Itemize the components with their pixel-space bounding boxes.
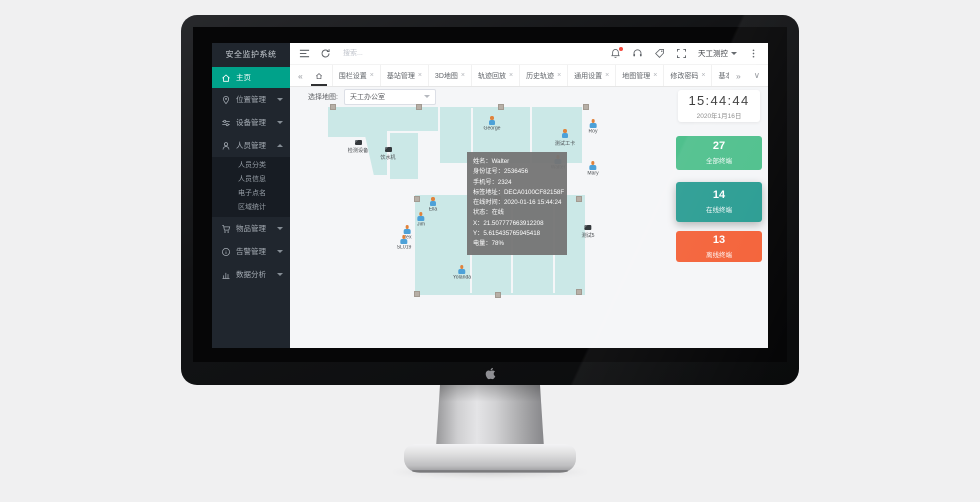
base-station-anchor [330, 104, 336, 110]
person-marker[interactable]: Jim [416, 212, 425, 228]
person-body-icon [590, 123, 597, 128]
notification-dot [619, 47, 623, 51]
tooltip-row: 标签地址DECA0100CF82158F [473, 188, 561, 198]
sidebar-item-label: 物品管理 [236, 223, 266, 234]
tab-label: 修改密码 [670, 71, 698, 81]
tooltip-value: 在线 [492, 209, 504, 216]
sidebar-item-cart[interactable]: 物品管理 [212, 217, 290, 240]
tooltip-row: X21.507777663912208 [473, 219, 561, 229]
sidebar-item-alarm[interactable]: 告警管理 [212, 240, 290, 263]
cart-icon [221, 224, 231, 234]
close-icon[interactable]: × [605, 72, 609, 79]
close-icon[interactable]: × [701, 72, 705, 79]
sidebar-item-chart[interactable]: 数据分析 [212, 263, 290, 286]
sidebar-subitem[interactable]: 人员信息 [212, 173, 290, 187]
monitor-frame: 安全监护系统 主页位置管理设备管理人员管理人员分类人员信息电子点名区域统计物品管… [181, 15, 799, 385]
tooltip-value: 5.615435765945418 [483, 230, 540, 237]
close-icon[interactable]: × [557, 72, 561, 79]
person-label: SL019 [397, 245, 412, 250]
desktop-background: 安全监护系统 主页位置管理设备管理人员管理人员分类人员信息电子点名区域统计物品管… [0, 0, 980, 502]
sidebar-item-label: 设备管理 [236, 117, 266, 128]
tab-label: 历史轨迹 [526, 71, 554, 81]
tooltip-label: 电量 [473, 240, 492, 247]
person-head-icon [419, 212, 423, 216]
fullscreen-icon[interactable] [676, 48, 687, 59]
sidebar: 安全监护系统 主页位置管理设备管理人员管理人员分类人员信息电子点名区域统计物品管… [212, 43, 290, 348]
item-marker[interactable]: 测试5 [580, 225, 595, 240]
tab-label: 通用设置 [574, 71, 602, 81]
monitor-chin [181, 362, 799, 385]
close-icon[interactable]: × [370, 72, 374, 79]
tooltip-value: 2536456 [504, 168, 528, 175]
person-head-icon [431, 197, 435, 201]
sidebar-item-label: 主页 [236, 72, 251, 83]
chevron-up-icon [277, 144, 283, 147]
person-label: Ella [429, 207, 438, 212]
tooltip-row: Y5.615435765945418 [473, 229, 561, 239]
sidebar-item-label: 位置管理 [236, 94, 266, 105]
tooltip-label: Y [473, 230, 483, 237]
person-marker[interactable]: 测试工卡 [553, 129, 577, 148]
refresh-icon[interactable] [320, 48, 331, 59]
clock-card: 15:44:44 2020年1月16日 [678, 90, 760, 122]
item-marker[interactable]: 检测设备 [346, 140, 370, 155]
tab-label: 基本资料 [718, 71, 729, 81]
chart-icon [221, 270, 231, 280]
sidebar-menu: 主页位置管理设备管理人员管理人员分类人员信息电子点名区域统计物品管理告警管理数据… [212, 67, 290, 286]
screen: 安全监护系统 主页位置管理设备管理人员管理人员分类人员信息电子点名区域统计物品管… [193, 27, 787, 362]
map-select-label: 选择地图: [308, 92, 338, 102]
notification-bell-icon[interactable] [610, 48, 621, 59]
close-icon[interactable]: × [461, 72, 465, 79]
person-body-icon [401, 239, 408, 244]
tooltip-label: 手机号 [473, 179, 498, 186]
alarm-icon [221, 247, 231, 257]
base-station-anchor [576, 289, 582, 295]
map-select-dropdown[interactable]: 天工办公室 [344, 89, 436, 105]
tab-item[interactable]: 围栏设置× [333, 65, 381, 86]
tab-item[interactable]: 地图管理× [616, 65, 664, 86]
home-icon [221, 73, 231, 83]
clock-time: 15:44:44 [688, 93, 749, 108]
person-marker[interactable]: Roy [588, 119, 599, 135]
user-menu[interactable]: 天工测控 [698, 48, 737, 59]
tooltip-row: 状态在线 [473, 208, 561, 218]
person-marker[interactable]: Yolanda [451, 265, 472, 281]
item-label: 检测设备 [348, 146, 368, 154]
person-marker[interactable]: SL019 [395, 235, 412, 251]
monitor-stand-base [404, 444, 576, 473]
home-icon [315, 72, 323, 80]
apple-logo-icon [485, 367, 496, 380]
tooltip-label: 姓名 [473, 158, 492, 165]
location-icon [221, 95, 231, 105]
tab-label: 围栏设置 [339, 71, 367, 81]
tooltip-row: 电量78% [473, 239, 561, 249]
tab-home[interactable] [306, 65, 333, 86]
sidebar-item-label: 数据分析 [236, 269, 266, 280]
chevron-down-icon [424, 95, 430, 98]
tab-item[interactable]: 轨迹回放× [472, 65, 520, 86]
scroll-tabs-left-icon[interactable]: « [295, 71, 306, 81]
tooltip-label: 标签地址 [473, 189, 504, 196]
stat-label: 全部终端 [706, 155, 732, 165]
person-marker[interactable]: George [482, 116, 502, 132]
tab-item[interactable]: 历史轨迹× [520, 65, 568, 86]
sidebar-submenu: 人员分类人员信息电子点名区域统计 [212, 157, 290, 217]
person-label: Yolanda [453, 275, 471, 280]
map-select-row: 选择地图: 天工办公室 [308, 89, 436, 104]
chevron-down-icon [277, 227, 283, 230]
item-icon [585, 225, 592, 230]
tabs-container: 围栏设置×基站管理×3D地图×轨迹回放×历史轨迹×通用设置×地图管理×修改密码×… [333, 65, 729, 86]
tooltip-row: 姓名Walter [473, 157, 561, 167]
person-body-icon [489, 120, 496, 125]
item-icon [354, 140, 361, 145]
tab-label: 轨迹回放 [478, 71, 506, 81]
stats-panel: 15:44:44 2020年1月16日 27全部终端14在线终端13离线终端 [676, 90, 762, 320]
chevron-down-icon [277, 250, 283, 253]
sidebar-item-person[interactable]: 人员管理 [212, 134, 290, 157]
chevron-down-icon [277, 121, 283, 124]
collapse-tabs-icon[interactable]: ∨ [751, 70, 763, 81]
tab-bar: « 围栏设置×基站管理×3D地图×轨迹回放×历史轨迹×通用设置×地图管理×修改密… [290, 64, 768, 87]
tab-bar-end: » ∨ [729, 70, 763, 81]
sidebar-item-device[interactable]: 设备管理 [212, 111, 290, 134]
tab-label: 3D地图 [435, 71, 458, 81]
base-station-anchor [414, 291, 420, 297]
chevron-down-icon [277, 273, 283, 276]
sidebar-item-label: 告警管理 [236, 246, 266, 257]
tooltip-row: 在线时间2020-01-16 15:44:24 [473, 198, 561, 208]
base-station-anchor [498, 104, 504, 110]
person-body-icon [590, 165, 597, 170]
close-icon[interactable]: × [509, 72, 513, 79]
person-head-icon [490, 116, 494, 120]
stat-value: 27 [713, 141, 725, 152]
chevron-down-icon [731, 52, 737, 55]
toolbar-right: 天工测控 [610, 48, 759, 59]
tooltip-value: 21.507777663912208 [483, 220, 543, 227]
content-area: 选择地图: 天工办公室 检测设备饮水机测试5GeorgeRoy测试工卡Walte… [290, 87, 768, 348]
tooltip-value: 78% [492, 240, 504, 247]
search-input[interactable] [341, 49, 431, 58]
tab-item[interactable]: 基站管理× [381, 65, 429, 86]
tooltip-label: 身份证号 [473, 168, 504, 175]
tab-item[interactable]: 基本资料 [712, 65, 729, 86]
person-body-icon [418, 216, 425, 221]
user-name: 天工测控 [698, 48, 728, 59]
item-label: 饮水机 [380, 153, 395, 161]
stat-card-1[interactable]: 27全部终端 [676, 136, 762, 170]
person-head-icon [405, 225, 409, 229]
base-station-anchor [583, 104, 589, 110]
map-select-value: 天工办公室 [350, 92, 385, 102]
person-marker[interactable]: Ella [428, 197, 438, 213]
tab-item[interactable]: 修改密码× [664, 65, 712, 86]
person-label: Roy [588, 129, 597, 134]
tab-item[interactable]: 通用设置× [568, 65, 616, 86]
tooltip-row: 手机号2324 [473, 178, 561, 188]
person-head-icon [402, 235, 406, 239]
stat-label: 离线终端 [706, 249, 732, 259]
person-label: 测试工卡 [555, 139, 575, 147]
item-icon [384, 147, 391, 152]
sidebar-item-label: 人员管理 [236, 140, 266, 151]
support-headset-icon[interactable] [632, 48, 643, 59]
person-icon [221, 141, 231, 151]
base-station-anchor [495, 292, 501, 298]
person-label: Mary [587, 171, 598, 176]
item-marker[interactable]: 饮水机 [379, 147, 397, 162]
person-head-icon [591, 119, 595, 123]
person-tooltip: 姓名Walter身份证号2536456手机号2324标签地址DECA0100CF… [467, 152, 567, 255]
scroll-tabs-right-icon[interactable]: » [733, 71, 744, 81]
tooltip-label: 在线时间 [473, 199, 504, 206]
person-label: Jim [417, 222, 425, 227]
sidebar-subitem[interactable]: 区域统计 [212, 201, 290, 215]
person-marker[interactable]: Mary [586, 161, 599, 177]
app-title: 安全监护系统 [212, 43, 290, 67]
chevron-down-icon [277, 98, 283, 101]
tooltip-label: 状态 [473, 209, 492, 216]
stat-label: 在线终端 [706, 204, 732, 214]
tooltip-value: 2324 [498, 179, 512, 186]
stat-value: 13 [713, 235, 725, 246]
person-body-icon [562, 133, 569, 138]
tooltip-value: 2020-01-16 15:44:24 [504, 199, 561, 206]
person-label: George [483, 126, 500, 131]
base-station-anchor [416, 104, 422, 110]
sidebar-subitem[interactable]: 电子点名 [212, 187, 290, 201]
stat-value: 14 [713, 190, 725, 201]
more-options-icon[interactable] [748, 48, 759, 59]
collapse-menu-icon[interactable] [299, 48, 310, 59]
map-room [382, 107, 438, 131]
tooltip-row: 身份证号2536456 [473, 167, 561, 177]
tag-icon[interactable] [654, 48, 665, 59]
sidebar-item-location[interactable]: 位置管理 [212, 88, 290, 111]
close-icon[interactable]: × [418, 72, 422, 79]
base-station-anchor [414, 196, 420, 202]
tab-label: 基站管理 [387, 71, 415, 81]
main-area: 天工测控 « 围栏 [290, 43, 768, 348]
sidebar-subitem[interactable]: 人员分类 [212, 159, 290, 173]
tooltip-label: X [473, 220, 483, 227]
app-window: 安全监护系统 主页位置管理设备管理人员管理人员分类人员信息电子点名区域统计物品管… [212, 43, 768, 348]
tab-label: 地图管理 [622, 71, 650, 81]
tooltip-value: DECA0100CF82158F [504, 189, 564, 196]
floor-plan-map: 检测设备饮水机测试5GeorgeRoy测试工卡WalterMaryEllaJim… [320, 105, 602, 305]
base-station-anchor [576, 196, 582, 202]
stat-card-3[interactable]: 13离线终端 [676, 231, 762, 262]
person-head-icon [591, 161, 595, 165]
person-head-icon [563, 129, 567, 133]
tooltip-value: Walter [492, 158, 510, 165]
person-body-icon [430, 201, 437, 206]
stat-card-2[interactable]: 14在线终端 [676, 182, 762, 222]
toolbar: 天工测控 [290, 43, 768, 64]
clock-date: 2020年1月16日 [697, 110, 742, 120]
tab-item[interactable]: 3D地图× [429, 65, 472, 86]
person-body-icon [404, 229, 411, 234]
device-icon [221, 118, 231, 128]
person-body-icon [459, 269, 466, 274]
sidebar-item-home[interactable]: 主页 [212, 67, 290, 88]
person-head-icon [460, 265, 464, 269]
item-label: 测试5 [581, 231, 594, 239]
close-icon[interactable]: × [653, 72, 657, 79]
monitor-stand-neck [436, 380, 544, 448]
